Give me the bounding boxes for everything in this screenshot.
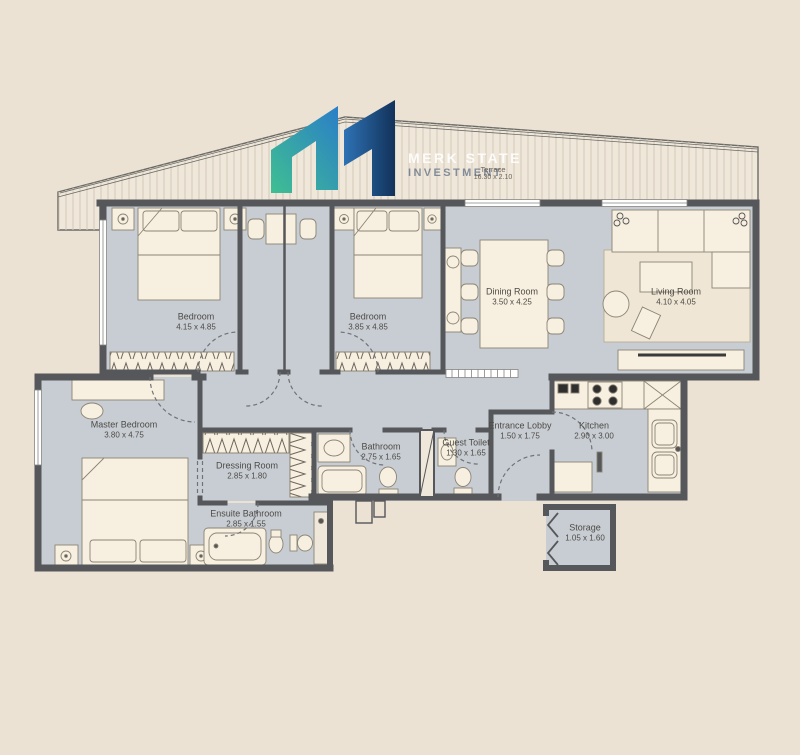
room-label-bedroom-2: Bedroom 3.85 x 4.85 (348, 311, 388, 332)
room-label-terrace: Terrace 16.30 x 2.10 (474, 165, 513, 183)
room-label-bathroom: Bathroom 2.75 x 1.65 (361, 441, 401, 462)
service-shaft (420, 430, 434, 497)
room-label-bedroom-1: Bedroom 4.15 x 4.85 (176, 311, 216, 332)
brand-logo (271, 100, 395, 196)
floor-plan-page: MERK STATE INVESTMENT Terrace 16.30 x 2.… (0, 0, 800, 755)
room-label-guest-toilet: Guest Toilet 1.30 x 1.65 (442, 437, 489, 458)
room-label-kitchen: Kitchen 2.90 x 3.00 (574, 420, 614, 441)
room-label-living-room: Living Room 4.10 x 4.05 (651, 286, 701, 307)
floor-grille (446, 370, 518, 378)
room-label-storage: Storage 1.05 x 1.60 (565, 522, 605, 543)
room-label-master-bedroom: Master Bedroom 3.80 x 4.75 (91, 419, 158, 440)
room-label-dressing-room: Dressing Room 2.85 x 1.80 (216, 460, 278, 481)
room-label-ensuite-bathroom: Ensuite Bathroom 2.85 x 1.55 (210, 508, 282, 529)
room-label-dining-room: Dining Room 3.50 x 4.25 (486, 286, 538, 307)
floor-plan-canvas (0, 0, 800, 755)
room-label-entrance-lobby: Entrance Lobby 1.50 x 1.75 (488, 420, 551, 441)
